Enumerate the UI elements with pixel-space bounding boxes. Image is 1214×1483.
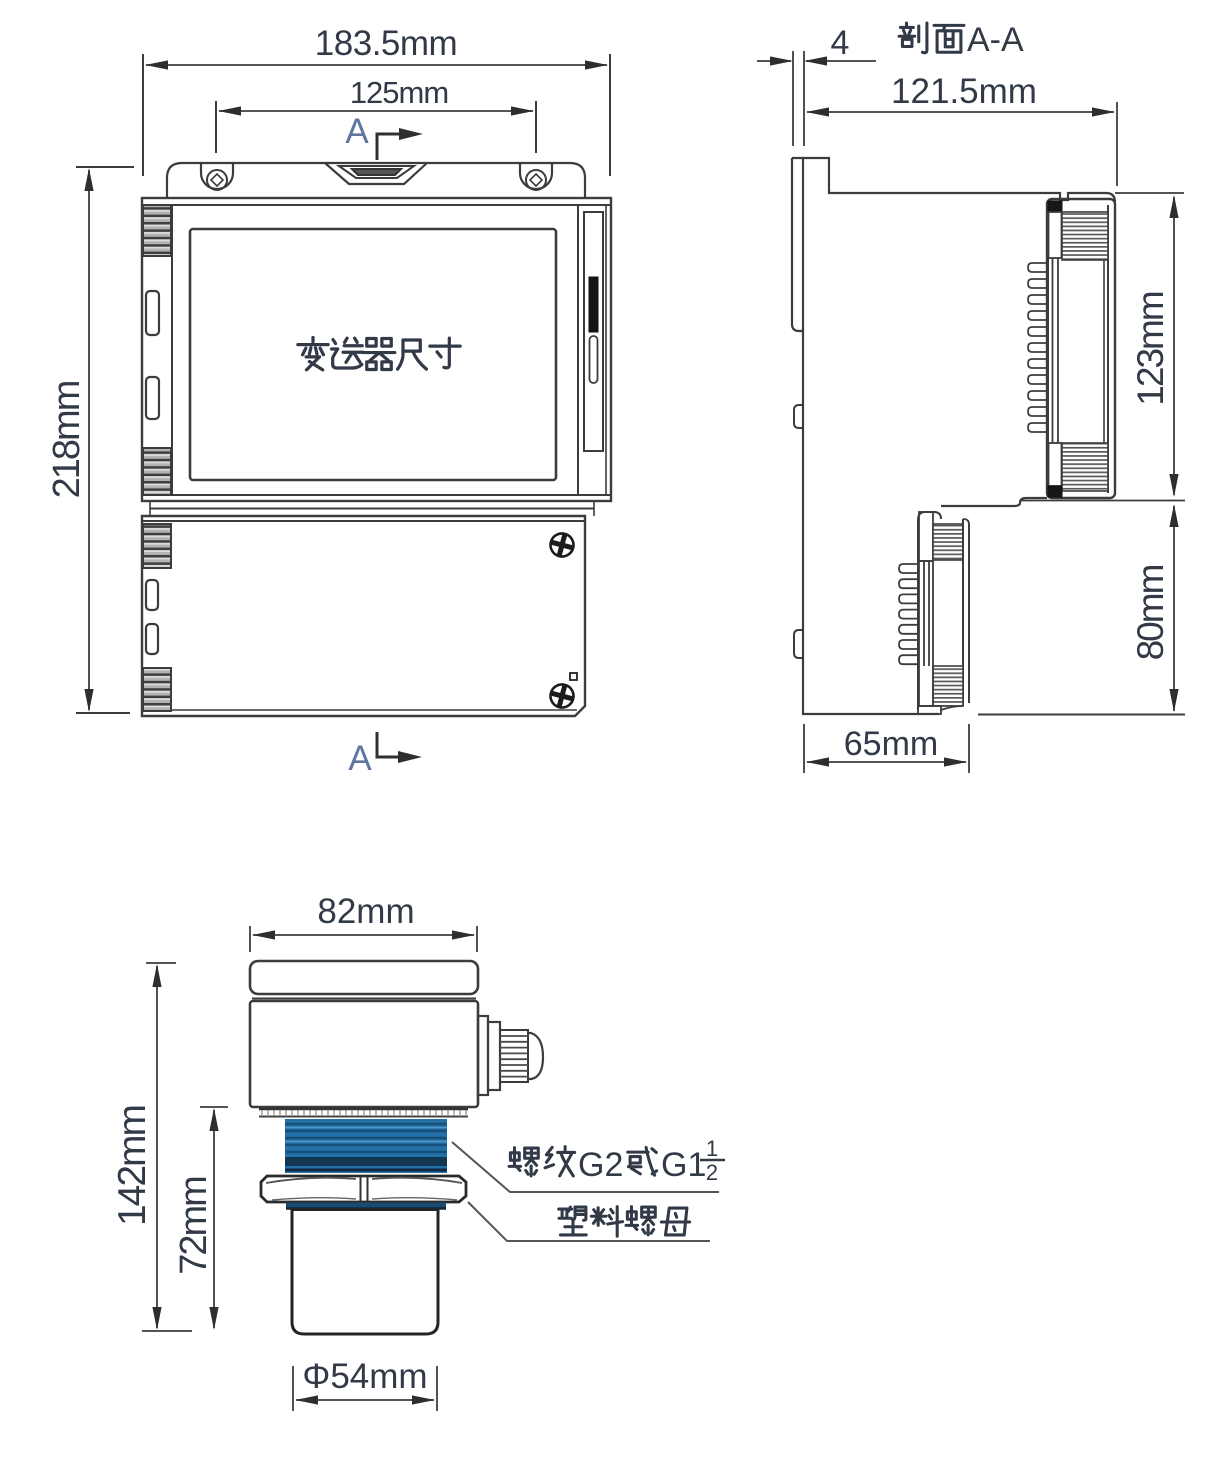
svg-text:142mm: 142mm xyxy=(111,1106,154,1226)
svg-text:72mm: 72mm xyxy=(173,1177,215,1275)
svg-text:A-A: A-A xyxy=(967,21,1024,59)
svg-text:Φ54mm: Φ54mm xyxy=(302,1357,427,1396)
svg-text:121.5mm: 121.5mm xyxy=(891,72,1037,111)
svg-text:A: A xyxy=(348,739,372,778)
svg-text:A: A xyxy=(345,112,369,151)
svg-text:80mm: 80mm xyxy=(1130,565,1171,660)
svg-text:65mm: 65mm xyxy=(844,725,938,763)
svg-text:1: 1 xyxy=(706,1136,718,1161)
svg-text:183.5mm: 183.5mm xyxy=(315,24,457,63)
svg-text:4: 4 xyxy=(831,24,850,62)
svg-text:G1: G1 xyxy=(661,1146,706,1184)
svg-text:123mm: 123mm xyxy=(1130,292,1171,406)
svg-text:82mm: 82mm xyxy=(317,892,414,931)
svg-text:125mm: 125mm xyxy=(350,75,448,110)
svg-text:218mm: 218mm xyxy=(46,381,88,498)
svg-text:2: 2 xyxy=(706,1160,718,1185)
svg-text:G2: G2 xyxy=(578,1146,623,1184)
